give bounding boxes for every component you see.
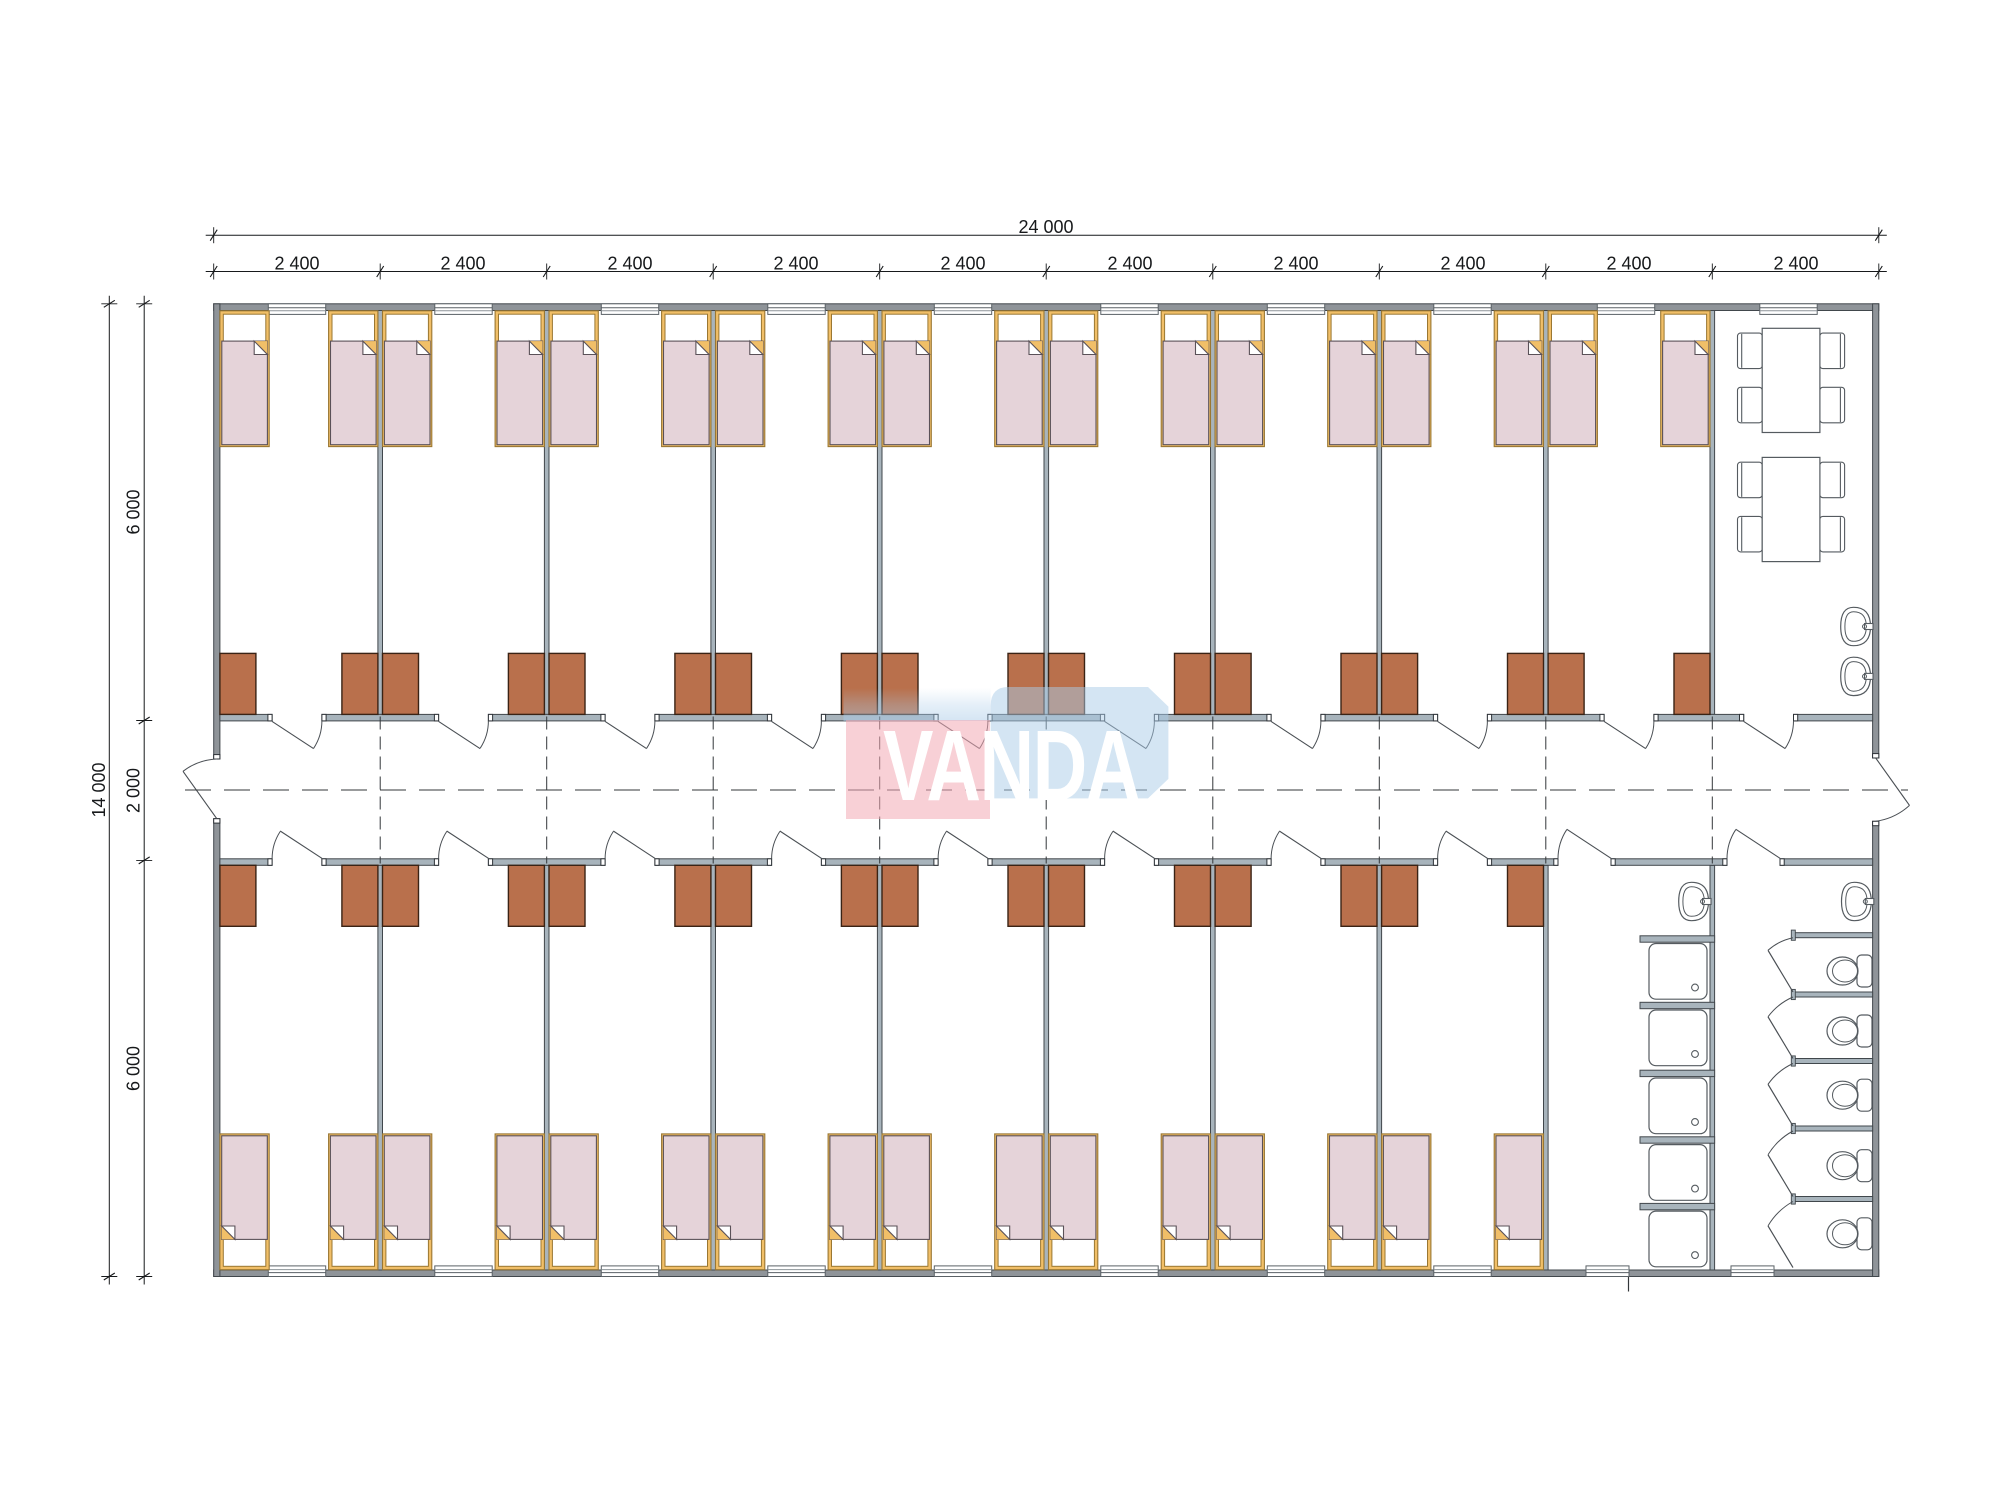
svg-text:2 400: 2 400 [1606,254,1651,274]
svg-text:2 400: 2 400 [1107,254,1152,274]
svg-text:2 400: 2 400 [773,254,818,274]
svg-text:2 400: 2 400 [607,254,652,274]
svg-text:2 400: 2 400 [440,254,485,274]
svg-text:2 000: 2 000 [124,768,144,813]
svg-text:2 400: 2 400 [274,254,319,274]
svg-text:6 000: 6 000 [124,1046,144,1091]
svg-text:2 400: 2 400 [1273,254,1318,274]
svg-text:6 000: 6 000 [124,489,144,534]
svg-text:2 400: 2 400 [1440,254,1485,274]
svg-text:2 400: 2 400 [1773,254,1818,274]
svg-text:24 000: 24 000 [1018,217,1073,237]
svg-text:14 000: 14 000 [89,762,109,817]
svg-text:VANDA: VANDA [883,710,1139,822]
svg-text:2 400: 2 400 [940,254,985,274]
